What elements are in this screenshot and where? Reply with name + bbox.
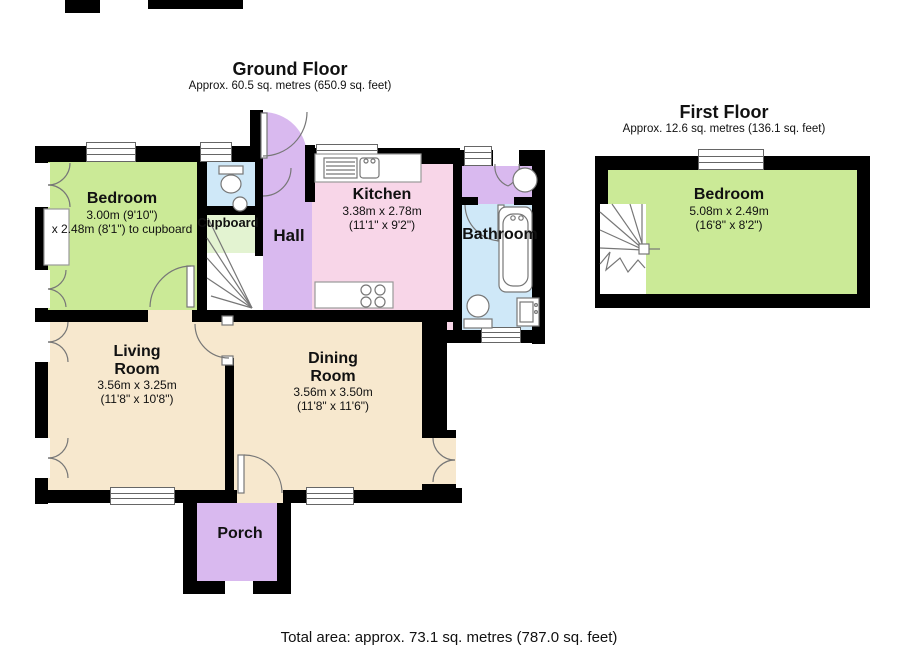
label-dining-room: Dining Room 3.56m x 3.50m (11'8" x 11'6"… [293, 350, 372, 414]
lobby-basin-icon [513, 168, 537, 192]
first-floor-area: Approx. 12.6 sq. metres (136.1 sq. feet) [623, 123, 826, 137]
label-bedroom-ground: Bedroom 3.00m (9'10") x 2.48m (8'1") to … [52, 190, 193, 236]
bedroom-door-icon [150, 266, 194, 307]
label-cupboard: Cupboard [197, 216, 258, 230]
kitchen-sink-icon [315, 154, 421, 182]
ground-floor-area: Approx. 60.5 sq. metres (650.9 sq. feet) [189, 80, 392, 94]
label-bathroom: Bathroom [462, 226, 538, 244]
front-door-icon [261, 112, 307, 158]
bay-french-doors-icon [433, 438, 455, 482]
bathroom-toilet-icon [464, 295, 492, 328]
label-living-room: Living Room 3.56m x 3.25m (11'8" x 10'8"… [97, 343, 176, 407]
ground-floor-title: Ground Floor [189, 60, 392, 80]
label-bedroom-first: Bedroom 5.08m x 2.49m (16'8" x 8'2") [689, 186, 768, 232]
kitchen-hob-icon [315, 282, 393, 308]
total-area-text: Total area: approx. 73.1 sq. metres (787… [281, 629, 618, 646]
first-floor-stairs-icon [600, 204, 660, 294]
hall-door-arc-icon [263, 168, 291, 196]
bathroom-basin-icon [517, 298, 539, 326]
ground-floor-title-block: Ground Floor Approx. 60.5 sq. metres (65… [189, 60, 392, 94]
label-porch: Porch [217, 525, 262, 543]
living-french-doors-icon [48, 322, 68, 478]
wc-basin-icon [233, 197, 247, 211]
ground-stairs-icon [207, 218, 252, 308]
first-floor-title: First Floor [623, 103, 826, 123]
wc-toilet-icon [219, 166, 243, 193]
label-kitchen: Kitchen 3.38m x 2.78m (11'1" x 9'2") [342, 186, 421, 232]
fixtures-overlay [0, 0, 900, 654]
porch-door-icon [238, 455, 282, 493]
living-dining-door-icon [195, 316, 233, 365]
bathtub-icon [499, 207, 532, 292]
first-floor-title-block: First Floor Approx. 12.6 sq. metres (136… [623, 103, 826, 137]
floorplan-canvas: Ground Floor Approx. 60.5 sq. metres (65… [0, 0, 900, 654]
label-hall: Hall [273, 227, 304, 246]
